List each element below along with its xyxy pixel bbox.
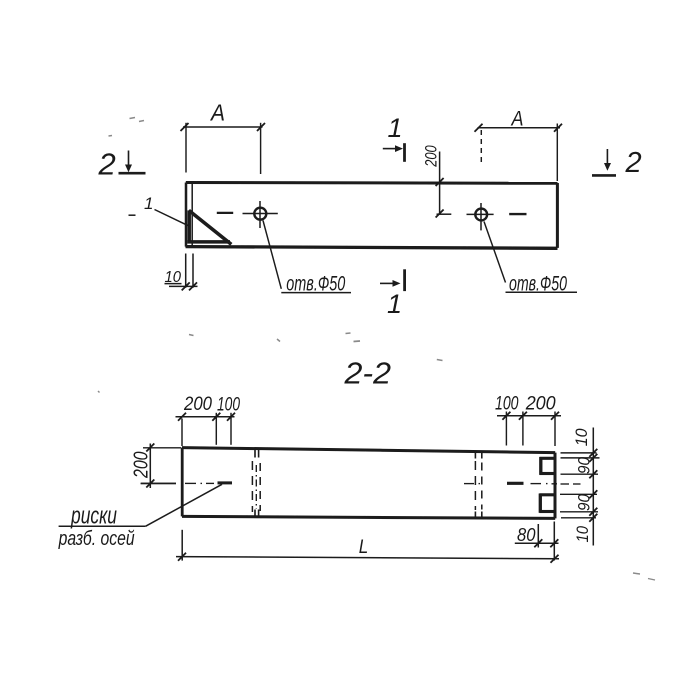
svg-text:100: 100 [217,393,240,415]
svg-text:80: 80 [517,525,536,545]
svg-text:90: 90 [575,494,594,511]
svg-text:А: А [510,106,524,130]
svg-text:10: 10 [572,428,591,446]
svg-text:200: 200 [525,393,556,415]
svg-text:2: 2 [625,147,642,179]
svg-text:2: 2 [98,147,116,182]
svg-text:90: 90 [575,457,594,474]
svg-text:1: 1 [144,194,153,213]
svg-text:2-2: 2-2 [343,356,391,391]
svg-text:200: 200 [131,452,153,479]
svg-text:отв.Ф50: отв.Ф50 [509,272,567,295]
svg-text:1: 1 [388,113,403,143]
svg-text:L: L [359,537,369,558]
svg-text:10: 10 [573,526,592,543]
svg-text:10: 10 [165,269,182,286]
svg-text:100: 100 [495,393,519,415]
svg-text:200: 200 [183,393,212,415]
svg-text:отв.Ф50: отв.Ф50 [286,273,345,296]
svg-text:разб. осей: разб. осей [58,528,135,550]
svg-text:риски: риски [70,503,117,530]
svg-text:200: 200 [422,145,441,168]
svg-text:А: А [209,100,225,126]
svg-text:1: 1 [387,289,402,319]
